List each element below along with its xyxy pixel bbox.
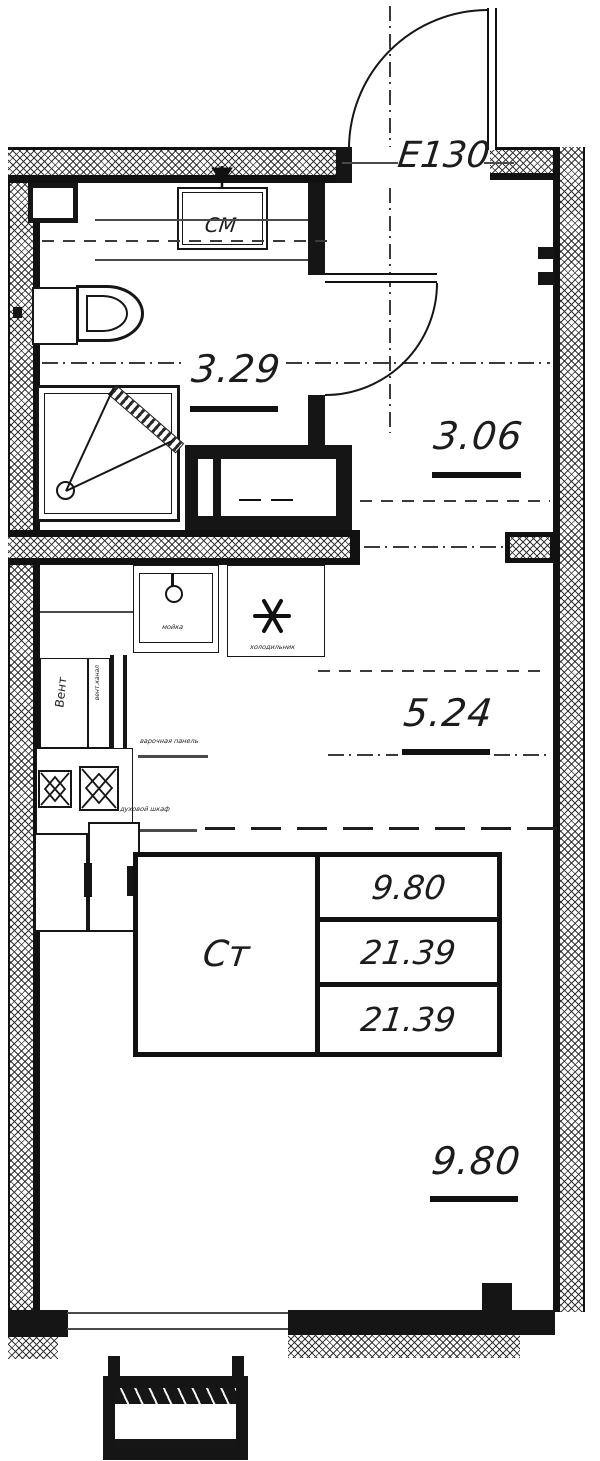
vanity-slot-small xyxy=(198,459,213,516)
vanity-slot-large xyxy=(221,459,336,516)
bathroom-door-leaf xyxy=(325,273,437,283)
fridge-unit: холодильник xyxy=(227,565,325,657)
cabinet-handle-1 xyxy=(84,863,92,897)
entry-door-arc xyxy=(349,10,487,149)
entry-axis-lower xyxy=(389,188,391,433)
sink-label: мойка xyxy=(162,624,184,631)
label-living-area: 9.80 xyxy=(430,1142,523,1180)
vent-shaft: Вент xyxy=(40,658,88,748)
entry-label: E130 xyxy=(396,138,492,174)
balcony-basket xyxy=(103,1376,248,1460)
stamp-row-total: 21.39 xyxy=(320,922,497,987)
shower-drain xyxy=(56,481,75,500)
balcony-post-right xyxy=(232,1356,244,1378)
counter-edge-line xyxy=(40,611,133,613)
burner-2 xyxy=(79,766,119,811)
bathroom-door-arc xyxy=(325,283,437,395)
cooktop-note-underline xyxy=(138,755,208,758)
stamp-type-label: Ст xyxy=(201,937,252,973)
entry-leader-left xyxy=(342,162,398,164)
stamp-table: Ст 9.80 21.39 21.39 xyxy=(133,852,502,1057)
wall-hall-south-stub xyxy=(505,532,555,563)
sink-tap-icon xyxy=(165,585,183,603)
entry-door-leaf xyxy=(487,8,497,150)
wall-bottom-left-hatch xyxy=(8,1337,58,1359)
sink-unit: мойка xyxy=(133,565,219,653)
label-bathroom-area: 3.29 xyxy=(190,350,283,388)
oven-note: духовой шкаф xyxy=(120,806,170,813)
axis-bath-hall-right xyxy=(286,362,550,364)
kitchen-axis-right xyxy=(494,754,550,756)
balcony-rail-top xyxy=(115,1388,236,1404)
vanity-unit xyxy=(185,445,352,530)
label-kitchen-area: 5.24 xyxy=(402,694,495,732)
hall-south-axis xyxy=(364,546,504,548)
underline-bathroom xyxy=(190,406,278,412)
wall-top xyxy=(8,147,350,183)
fridge-label: холодильник xyxy=(250,644,296,651)
cooktop-note: варочная панель xyxy=(140,738,199,745)
wall-bottom-left xyxy=(8,1310,68,1337)
window-line-inner xyxy=(67,1328,288,1330)
wall-right xyxy=(553,147,585,1312)
floorplan-canvas: E130 СМ мойка холодильник Вент вент.кана… xyxy=(0,0,600,1461)
stamp-row-total-balcony: 21.39 xyxy=(320,987,497,1052)
wall-bottom-right xyxy=(288,1310,555,1335)
stamp-row-living: 9.80 xyxy=(320,857,497,922)
bath-line-b xyxy=(42,240,330,242)
underline-kitchen xyxy=(402,749,490,755)
stamp-type-cell: Ст xyxy=(138,857,320,1052)
entry-door-jamb xyxy=(336,147,352,183)
entry-axis-upper xyxy=(389,6,391,147)
stamp-total-balcony-value: 21.39 xyxy=(359,1003,458,1036)
wall-bathroom-south xyxy=(8,530,360,565)
bath-line-a xyxy=(95,219,308,221)
kitchen-axis-left xyxy=(328,754,398,756)
wall-bottom-right-hatch xyxy=(288,1335,520,1358)
duct-box xyxy=(28,183,78,223)
wall-tie-a xyxy=(538,247,554,259)
underline-living xyxy=(430,1196,518,1202)
kitchen-zone-line xyxy=(205,827,557,830)
toilet-tank xyxy=(32,287,78,345)
vent-band xyxy=(110,655,127,748)
balcony-rail-bottom xyxy=(115,1439,236,1448)
underline-hallway xyxy=(432,472,521,478)
hall-zone-line xyxy=(360,500,550,502)
vent-channel: вент.канал xyxy=(88,658,110,748)
axis-bath-hall-left xyxy=(42,362,182,364)
window-line-outer xyxy=(67,1312,288,1314)
burner-1 xyxy=(38,770,72,808)
kitchen-line-a xyxy=(318,670,548,672)
vent-label: Вент xyxy=(53,677,68,707)
bath-line-c xyxy=(95,259,308,261)
washing-machine-label: СМ xyxy=(204,215,238,235)
stamp-living-value: 9.80 xyxy=(370,871,448,904)
partition-stub-upper xyxy=(308,183,325,275)
balcony-post-left xyxy=(108,1356,120,1378)
vent-channel-label: вент.канал xyxy=(95,665,102,700)
wall-tie-b xyxy=(538,272,554,285)
label-hallway-area: 3.06 xyxy=(432,417,525,455)
wall-bottom-pier xyxy=(482,1283,512,1312)
cabinet-1 xyxy=(34,833,88,932)
water-inlet-dot xyxy=(13,307,22,318)
stamp-total-value: 21.39 xyxy=(359,936,458,969)
